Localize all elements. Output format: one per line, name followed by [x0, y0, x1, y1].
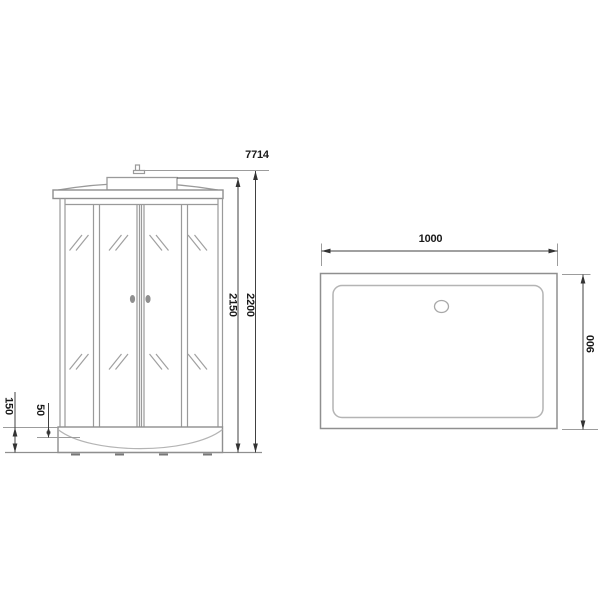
tray-rim-height-label: 50 — [34, 404, 46, 416]
technical-drawing-page: 7714 2150 2200 150 50 1000 900 — [0, 0, 600, 600]
roof-vent-stem — [136, 165, 140, 171]
shower-cabin-diagram: 7714 2150 2200 150 50 1000 900 — [0, 0, 600, 600]
roof-vent-base — [134, 171, 145, 174]
left-door-handle — [130, 295, 135, 303]
cornice-bar — [53, 190, 223, 199]
glass-hatch-marks-lower — [70, 354, 208, 370]
cabin-height-label: 2150 — [227, 293, 239, 317]
glass-hatch-marks-upper — [70, 235, 208, 251]
shower-tray-top-view — [321, 274, 558, 429]
tray-depth-label: 900 — [585, 335, 597, 353]
frame-posts — [60, 199, 223, 428]
tray-height-label: 150 — [3, 397, 15, 415]
drain-hole — [435, 301, 449, 313]
total-height-label: 2200 — [244, 293, 256, 317]
tray-outer-edge — [321, 274, 558, 429]
roof-cap-box — [107, 178, 177, 191]
tray-width-label: 1000 — [419, 233, 443, 245]
right-door-handle — [145, 295, 150, 303]
model-number-label: 7714 — [245, 149, 270, 161]
